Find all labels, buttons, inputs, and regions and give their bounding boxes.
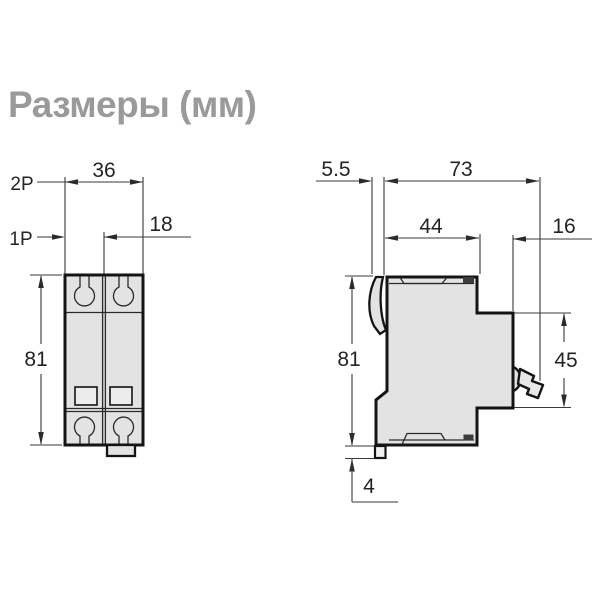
dim-height-front: 81 [24,275,62,445]
side-body-outline [376,277,513,445]
dim-label-81-side: 81 [337,348,360,371]
dim-label-45: 45 [554,349,577,372]
dim-clip-offset: 5.5 [316,158,384,275]
dim-label-36: 36 [92,159,115,182]
top-clip-detail [463,277,474,283]
arrow-right-icon [130,179,143,185]
bottom-clip-detail [464,435,474,441]
dim-upper-depth: 44 [385,215,480,274]
toggle-lever [518,369,543,398]
arrow-left-icon [385,235,398,241]
arrow-up-icon [561,313,567,326]
arrow-left-icon [65,179,78,185]
side-view: 5.5 73 44 1 [316,158,592,502]
dim-foot: 4 [345,459,398,503]
pole1-label: 1P [9,229,32,250]
dim-label-81-front: 81 [24,348,47,371]
toggle-front [75,387,97,405]
dim-width-2p: 36 2P [10,159,143,274]
toggle-front [110,387,132,405]
dim-front-height: 45 [514,313,578,408]
dim-width-1p: 18 1P [9,213,191,274]
arrow-right-icon [359,178,372,184]
pole2-label: 2P [10,174,33,195]
arrow-down-icon [349,433,355,446]
breaker-front-body [65,275,143,456]
dimensions-drawing-page: Размеры (мм) 36 2P 18 1P [0,0,600,600]
arrow-down-icon [561,395,567,408]
arrow-down-icon [38,432,44,445]
din-clip-claw [369,277,386,334]
dim-handle-depth: 16 [513,215,592,311]
arrow-left-icon [104,234,117,240]
dim-label-4: 4 [363,475,375,498]
arrow-right-icon [466,235,479,241]
arrow-right-icon [526,178,539,184]
dim-label-18: 18 [149,213,172,236]
dim-label-16: 16 [552,215,575,238]
technical-drawing: 36 2P 18 1P 81 [0,0,600,600]
breaker-side-body [369,277,543,458]
rail-tab-front [107,445,135,456]
arrow-left-icon [513,236,526,242]
front-view: 36 2P 18 1P 81 [9,159,191,456]
arrow-left-icon [385,178,398,184]
arrow-right-icon [52,234,65,240]
front-body-outline [65,275,143,445]
arrow-up-icon [349,276,355,289]
dim-label-73: 73 [449,158,472,181]
dim-label-5-5: 5.5 [321,158,350,181]
dim-label-44: 44 [419,215,443,238]
arrow-up-icon [38,275,44,288]
foot-tab [375,446,386,458]
